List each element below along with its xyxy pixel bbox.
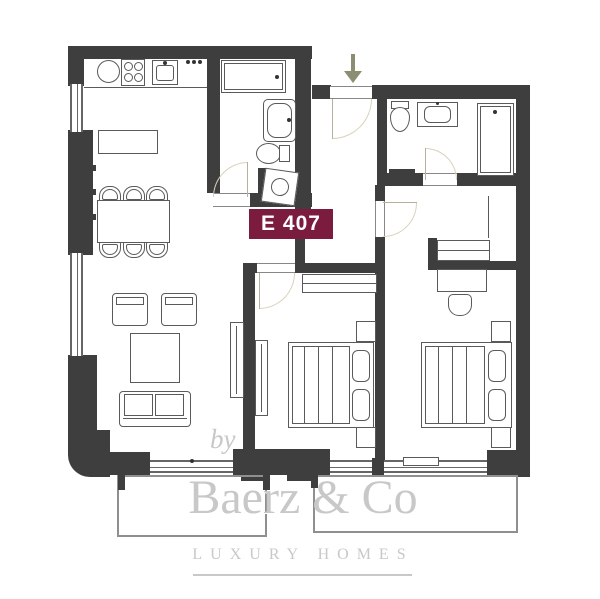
bed1-door-leaf [259,273,260,309]
sofa-cushion [124,394,153,416]
nightstand [491,427,511,448]
coffee-table [130,333,180,383]
closet-bed1-line [302,283,377,284]
desk [437,269,487,292]
watermark-brand: Baerz & Co [183,470,423,525]
counter-dot [186,60,190,64]
bed2-door-swing [383,203,417,237]
wall-left-pier [68,130,93,255]
window-latch-dot [190,459,194,463]
nightstand [356,321,376,342]
pillow [352,350,370,382]
entry-door-leaf [332,99,333,139]
blanket-fold [304,346,305,424]
entry-door-swing [332,99,372,139]
counter-dot [192,60,196,64]
wall-bath1-left [207,46,220,193]
pillow [488,389,506,421]
wall-top-right [372,85,530,99]
armchair-back [165,297,193,305]
tv-cabinet [230,322,244,398]
wall-right [516,99,530,477]
dining-chair [146,241,168,258]
toilet-bowl [256,143,281,164]
counter-dot [198,60,202,64]
kitchen-sink-basin [156,65,174,81]
mattress [425,346,485,424]
sliding-panel [403,457,439,466]
dining-chair [123,241,145,258]
floor-plan: E 407 by Baerz & Co LUXURY HOMES [0,0,600,599]
bed1-door-threshold [257,263,295,273]
blanket-fold [318,346,319,424]
wall-entry-stub [312,85,331,99]
kitchen-counter-edge [84,87,207,88]
entrance-arrow-icon [344,71,362,83]
toilet-tank [279,145,290,162]
bath2-shelf [389,169,415,175]
dining-chair [99,241,121,258]
wall-bed1-top-a [243,263,257,273]
watermark-by: by [210,424,270,455]
wall-top-left [68,46,312,59]
wall-hall-left [295,59,311,209]
kitchen-sink-round [97,60,120,83]
wall-bath2-left [377,99,387,179]
entrance-arrow-shaft [351,54,355,72]
faucet-dot [163,61,167,65]
window-left-upper [70,84,83,132]
nightstand [356,427,376,448]
unit-badge: E 407 [249,209,333,239]
desk-chair [448,294,472,316]
mattress [292,346,350,424]
washbasin-inner [424,106,451,123]
bed2-door-leaf [383,202,417,203]
wall-bump [91,165,96,171]
wall-bottom-living [85,452,150,475]
wall-left-upper [68,46,84,86]
closet-bed2-line [437,250,490,251]
kitchen-island [98,130,158,154]
dining-table [97,200,170,243]
watermark-tagline: LUXURY HOMES [188,546,418,564]
wall-bottom-right [487,450,530,477]
shower-drain-dot [275,75,279,79]
stove-burner [124,62,133,71]
window-left-mid [70,253,83,356]
shower-2-head-dot [493,110,497,114]
balcony-stub [118,475,125,490]
bed1-door-swing [259,273,295,309]
blanket-fold [438,346,439,424]
armchair-back [116,297,144,305]
pillow [352,389,370,421]
sofa-cushion [155,394,184,416]
wardrobe-bed1-line [261,344,262,412]
blanket-fold [452,346,453,424]
closet-divider-line [488,196,489,238]
stove-burner [124,73,133,82]
blanket-fold [466,346,467,424]
bath2-door-swing [425,148,457,180]
bath2-door-leaf [425,148,426,180]
bathtub-faucet-dot [287,118,291,122]
entry-door-threshold [330,86,372,99]
nightstand [491,321,511,342]
shower-2-inner [480,106,511,173]
sofa-back-line [123,418,187,419]
washbasin-faucet-dot [436,102,439,105]
toilet2-bowl [390,107,410,132]
pillow [488,350,506,382]
wall-bump [91,189,96,195]
stove-burner [134,62,143,71]
blanket-fold [332,346,333,424]
wall-bed2-left-a [375,185,385,201]
wall-bed2-left-b [375,237,385,462]
wall-bed1-top-b [295,263,383,273]
watermark-rule [193,574,412,576]
bath1-door-leaf [247,162,248,197]
stove-burner [134,73,143,82]
wall-bump [91,214,96,220]
tv-cabinet-line [236,326,237,394]
